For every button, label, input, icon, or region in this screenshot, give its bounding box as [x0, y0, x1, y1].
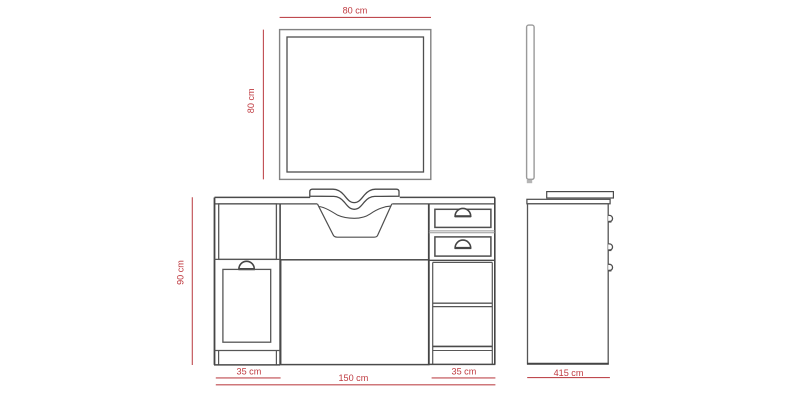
- svg-text:150 cm: 150 cm: [338, 373, 368, 383]
- svg-text:415 cm: 415 cm: [554, 368, 584, 378]
- svg-text:35 cm: 35 cm: [237, 367, 262, 377]
- svg-text:35 cm: 35 cm: [452, 367, 477, 377]
- svg-text:80 cm: 80 cm: [343, 5, 368, 15]
- svg-text:90 cm: 90 cm: [175, 260, 185, 285]
- svg-text:80 cm: 80 cm: [246, 88, 256, 113]
